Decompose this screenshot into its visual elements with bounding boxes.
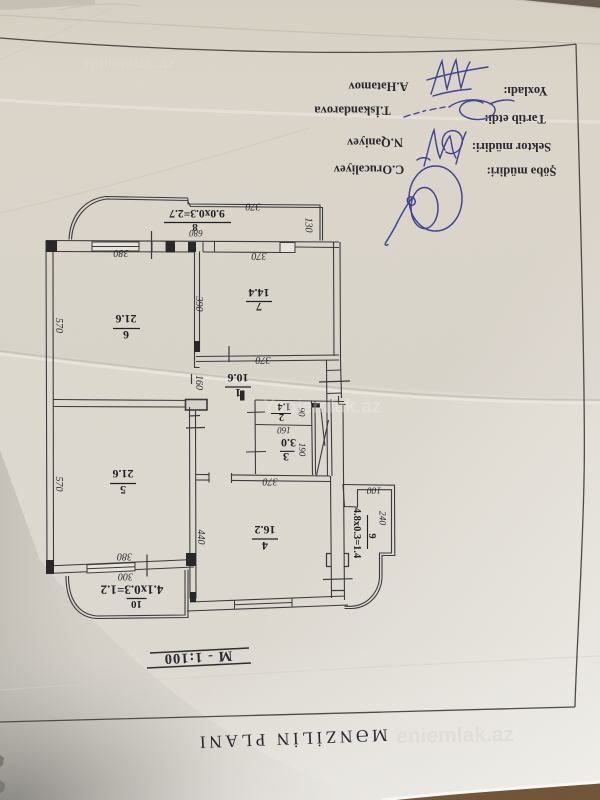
svg-text:eniemlak.az: eniemlak.az bbox=[396, 723, 514, 748]
svg-text:Yeniemlak.az: Yeniemlak.az bbox=[263, 397, 381, 418]
svg-text:Yeniemlak.az: Yeniemlak.az bbox=[81, 55, 174, 72]
